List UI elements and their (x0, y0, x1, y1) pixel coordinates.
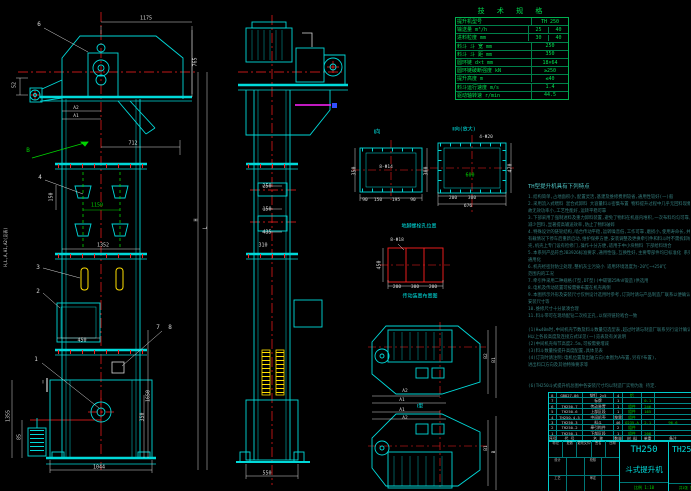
note-line: 8.电机及传动装置可按需要布置在机壳两侧 (528, 285, 690, 292)
title-block-cell: 审定 (585, 476, 603, 491)
note-line: (2)中间机壳每节高度2.5m,可按需要增减 (528, 341, 690, 348)
bom-cell (655, 398, 691, 402)
spec-cell: 30 (529, 35, 549, 41)
note-line: 减少回料,显著提高输送效率,防止了物料破碎 (528, 222, 690, 229)
bom-cell: 牵引构件 (583, 425, 613, 429)
title-block: 标记处数更改文件号签名日期设计校核工艺审定 TH250 斗式提升机 比例 1:1… (548, 440, 691, 491)
note-line: 5.本系列产品符合JB3926标准要求,通用性强,互换性好,主要零部件均已标准化… (528, 250, 690, 257)
spec-cell: 提升高度 m (456, 75, 532, 82)
dim-label: 8 (168, 325, 172, 331)
bom-cell: 按需 (614, 415, 624, 419)
dim-label: H (195, 218, 200, 221)
title-block-cell (602, 476, 619, 491)
dim-label: 8-Φ14 (379, 166, 393, 171)
dim-label: 1150 (91, 204, 103, 209)
dim-label: B (493, 451, 498, 454)
dim-label: 1175 (140, 17, 152, 22)
dim-label: 85 (18, 434, 23, 440)
dim-label: 3 (36, 265, 40, 271)
title-block-cell (567, 476, 585, 491)
dim-label: 1650 (147, 390, 152, 402)
note-line: (1)H≤40m时,中间机壳节数及料斗数量见选型表,超过时请与制造厂联系另行设计… (528, 327, 690, 334)
spec-row: 料斗 斗 距 mm350 (456, 51, 568, 59)
bom-cell: 组件 (623, 404, 641, 408)
note-line: 故无效功率小,工艺性能好,运转平稳可靠 (528, 208, 690, 215)
spec-cell: 料斗 斗 宽 mm (456, 43, 532, 50)
spec-table: 技 术 规 格 提升机型号TH 250输送量 m³/h2540进料粒度 mm30… (455, 6, 569, 100)
note-line: 3.下部采用了强制进料及重力卸料装置,避免了物料在机座内堆积,一次布料均匀可靠,… (528, 215, 690, 222)
bom-cell: 6 (549, 404, 557, 408)
note-line: 7.牵引件采用二种规格(T型,DT型)(中碳钢25MnV锻造)供选用 (528, 278, 690, 285)
bom-cell: 传动装置 (583, 404, 613, 408)
dim-label: 1 (34, 357, 38, 363)
title-block-cell: 校核 (585, 458, 603, 474)
dim-label: Ⅰ (42, 381, 43, 386)
bom-cell: TH250.7 (557, 404, 584, 408)
title-block-row: 标记处数更改文件号签名日期 (549, 441, 619, 458)
dim-label: 8-Φ18 (390, 239, 404, 244)
dim-label: 150 (262, 208, 271, 213)
title-block-cell: 设计 (549, 458, 567, 474)
product-name: 斗式提升机 (620, 464, 668, 483)
dim-label: 250 (262, 185, 271, 190)
dim-label: 450 (77, 339, 86, 344)
spec-cell: ≤40 (532, 76, 568, 82)
dim-label: 195 (392, 199, 400, 204)
bom-cell: 铆钉 2×5 (583, 393, 613, 397)
spec-row: 提升高度 m≤40 (456, 75, 568, 83)
notes-block: TH型提升机具有下列特点 1.结构简单,占地面积小,配置灵活,基建及维修费用较省… (528, 182, 690, 390)
dim-label: 150 (50, 192, 55, 201)
dim-label: 6 (37, 22, 41, 28)
scale-label: 比例 1:10 (620, 482, 668, 491)
dim-label: 90 (362, 199, 367, 204)
anchor-bolt-detail (380, 244, 450, 289)
note-line: 11.料斗带可在现场配钻二次校正孔,以保持链轮啮合一致 (528, 313, 690, 320)
spec-cell: 44.5 (532, 92, 568, 98)
spec-table-title: 技 术 规 格 (455, 6, 569, 17)
bom-cell (655, 431, 691, 435)
spec-table-grid: 提升机型号TH 250输送量 m³/h2540进料粒度 mm3040料斗 斗 宽… (455, 17, 569, 100)
spec-cell: 圆环链破断强度 kN (456, 67, 532, 74)
dim-label: 4 (38, 175, 42, 181)
bom-cell: 2 (614, 425, 624, 429)
note-line: 4.特殊设计的链轮结构,啮合传动平稳,运转噪音低,工作可靠,磨损小,使用寿命长,… (528, 229, 690, 236)
dim-label: 300 (411, 286, 419, 291)
spec-row: 进料粒度 mm3040 (456, 34, 568, 42)
bom-cell: 2.1 (642, 420, 655, 424)
bom-cell: TH250.3 (557, 420, 584, 424)
bom-cell (642, 425, 655, 429)
bom-cell: 46 (614, 420, 624, 424)
dim-label: 200 (429, 286, 437, 291)
title-block-cell: 签名 (592, 441, 606, 457)
note-line: 进出料口方向及其他特殊要求等 (528, 362, 690, 369)
title-block-cell: 日期 (606, 441, 619, 457)
dim-label: 7 (156, 325, 160, 331)
dim-label: H,L,A,A1,A2(见表) (4, 227, 8, 266)
bom-cell: 铝 (623, 393, 641, 397)
title-block-right: TH250 共1张 第1张 (669, 441, 691, 491)
spec-row: 圆环链破断强度 kN≥250 (456, 67, 568, 75)
dim-label: B (26, 148, 30, 154)
front-elevation-view (12, 12, 207, 473)
dim-label: 550 (262, 472, 271, 477)
spec-cell: 250 (532, 43, 568, 49)
bom-cell: 5 (549, 409, 557, 413)
bom-cell (655, 393, 691, 397)
dim-label: 1355 (7, 410, 12, 422)
spec-cell: 40 (549, 35, 568, 41)
notes-lines: 1.结构简单,占地面积小,配置灵活,基建及维修费用较省,通用性较好(一)般2.采… (528, 194, 690, 390)
dim-label: Ⅱ向(放大) (452, 128, 475, 133)
title-block-cell (567, 458, 585, 474)
dim-label: 200 (393, 286, 401, 291)
dim-label: 90 (410, 199, 415, 204)
dim-label: A1 (73, 115, 78, 120)
spec-cell: 25 (529, 27, 549, 33)
note-line (528, 369, 690, 376)
bom-cell: 0.1 (642, 398, 655, 402)
dim-label: A1 (399, 399, 404, 404)
bom-cell: 1 (614, 431, 624, 435)
note-line: 安装尺寸等 (528, 299, 690, 306)
spec-row: 圆环链 d×t mm18×64 (456, 59, 568, 67)
spec-cell: 40 (549, 27, 568, 33)
note-line: 6.机壳经密封防尘处理,整机灰尘污染小 适用环境温度为-20℃~+250℃ (528, 264, 690, 271)
bom-cell (655, 409, 691, 413)
dim-label: 435 (262, 231, 271, 236)
spec-cell: TH 250 (532, 19, 568, 25)
note-line: 9.本图所示外形及安装尺寸仅供设计选用时参考,订货时请与产品制造厂联系以便确认最… (528, 292, 690, 299)
dim-label: 450 (378, 260, 383, 269)
dim-label: 150 (374, 199, 382, 204)
bom-cell: TH250.4,5 (557, 415, 584, 419)
title-block-cell: 更改文件号 (577, 441, 591, 457)
dim-label: B1 (493, 357, 498, 362)
dim-label: A2 (73, 107, 78, 112)
dim-label: 310 (258, 244, 267, 249)
dim-label: 765 (194, 57, 199, 66)
dim-label: 470 (509, 163, 514, 172)
title-block-row: 设计校核 (549, 458, 619, 475)
dim-label: B2 (485, 353, 490, 358)
dim-label: 300 (425, 166, 430, 175)
drive-arrangement-upper (368, 322, 496, 403)
bom-cell: 上部区段 (583, 409, 613, 413)
bom-cell: 下部区段 (583, 431, 613, 435)
spec-cell: 1.4 (532, 84, 568, 90)
bom-cell (642, 415, 655, 419)
notes-title: TH型提升机具有下列特点 (528, 182, 690, 190)
dim-label: A1 (399, 409, 404, 414)
bom-cell: 料斗 (583, 420, 613, 424)
dim-label: 712 (128, 142, 137, 147)
bom-cell: TH250.2 (557, 425, 584, 429)
detail-view-1 (352, 140, 430, 201)
dim-label: B1 (485, 445, 490, 450)
dim-label: Ⅰ向 (373, 130, 380, 136)
bom-cell: 中间机壳 (583, 415, 613, 419)
dim-label: 传动装置布置图 (402, 295, 437, 300)
bom-cell: 组件 (623, 409, 641, 413)
bom-cell: 标牌 (583, 398, 613, 402)
bom-cell (557, 398, 584, 402)
dim-label: 350 (353, 166, 358, 175)
spec-row: 料斗运行速度 m/s1.4 (456, 84, 568, 92)
bom-cell: TH250.6 (557, 409, 584, 413)
bom-cell: Q235-A (623, 420, 641, 424)
bom-cell: 3 (549, 420, 557, 424)
cad-drawing-canvas[interactable]: 1175676552A2A1712B41501150135232450781Ⅰ1… (0, 0, 691, 491)
bom-cell: 组件 (623, 425, 641, 429)
note-line (528, 320, 690, 327)
dim-label: 2 (36, 289, 40, 295)
bom-cell: 1 (614, 409, 624, 413)
title-block-center: TH250 斗式提升机 比例 1:10 (620, 441, 669, 491)
dim-label: 地脚螺栓孔位置 (401, 225, 436, 230)
spec-row: 提升机型号TH 250 (456, 18, 568, 26)
note-line: 壳,机壳上专门设有检修门,操作十分方便,适用于中小块物料 下部给料场合 (528, 243, 690, 250)
dim-label: A2 (402, 390, 407, 395)
dim-label: 52 (13, 82, 18, 88)
spec-cell: 18×64 (532, 60, 568, 66)
dim-label: 4-Φ20 (479, 136, 493, 141)
spec-cell: 圆环链 d×t mm (456, 59, 532, 66)
title-block-cell: 工艺 (549, 476, 567, 491)
bom-cell: 2 (549, 425, 557, 429)
sheet-label: 共1张 第1张 (669, 483, 691, 491)
note-line: 通用化 (528, 257, 690, 264)
spec-cell: 提升机型号 (456, 18, 532, 25)
spec-cell: 进料粒度 mm (456, 34, 529, 41)
bom-cell: 96.6 (655, 420, 691, 424)
bom-cell: 组件 (623, 415, 641, 419)
drive-arrangement-lower (368, 410, 496, 490)
bom-cell: TH250.1 (557, 431, 584, 435)
spec-cell: 料斗 斗 距 mm (456, 51, 532, 58)
note-line (528, 376, 690, 383)
dim-label: 676 (464, 205, 472, 210)
note-line: 1.结构简单,占地面积小,配置灵活,基建及维修费用较省,通用性较好(一)般 (528, 194, 690, 201)
bom-cell: 组件 (623, 431, 641, 435)
drawing-number: TH250 (669, 441, 691, 483)
note-line: 有载情况下停车后重新启动,维护保养方便,安装调整及更换牵引件和料斗时不需拆卸机 (528, 236, 690, 243)
bom-cell: 8 (549, 393, 557, 397)
dim-label: L (204, 226, 209, 229)
bom-cell (655, 425, 691, 429)
spec-cell: 料斗运行速度 m/s (456, 84, 532, 91)
title-block-cell: 处数 (563, 441, 577, 457)
note-line: (6)TH250斗式提升机总图中各安装尺寸均以制造厂实物为准 待定. (528, 383, 690, 390)
bom-cell (642, 393, 655, 397)
note-line: 范围内的工况 (528, 271, 690, 278)
bom-cell: 1 (614, 404, 624, 408)
bom-cell: 1 (614, 398, 624, 402)
spec-row: 输送量 m³/h2540 (456, 26, 568, 34)
note-line: H以上各段高度及连接方式详见(一)览表及有关说明 (528, 334, 690, 341)
title-block-row: 工艺审定 (549, 476, 619, 491)
model-number: TH250 (620, 441, 668, 464)
spec-cell: 输送量 m³/h (456, 26, 529, 33)
title-block-cell: 标记 (549, 441, 563, 457)
bom-cell (655, 415, 691, 419)
note-line: 2.采用流入式喂料 混合式卸料 大容量料斗密集布置 物料提升过程中几乎无回料现象 (528, 201, 690, 208)
bom-table: 8GB827-86铆钉 2×54铝7标牌10.16TH250.7传动装置1组件2… (548, 392, 691, 442)
dim-label: Ⅰ型 (417, 405, 423, 410)
bom-cell: GB827-86 (557, 393, 584, 397)
bom-cell (623, 398, 641, 402)
bom-cell: 165 (642, 409, 655, 413)
note-line: (4)订货时请注明:电机位置及出轴方向(本图为A布置,另有Y布置), (528, 355, 690, 362)
dim-label: 350 (141, 412, 146, 421)
bom-cell: 4 (549, 415, 557, 419)
bom-cell: 246 (642, 404, 655, 408)
spec-cell: ≥250 (532, 68, 568, 74)
bom-cell: 1 (549, 431, 557, 435)
side-elevation-view (236, 15, 348, 485)
bom-cell: 208 (642, 431, 655, 435)
note-line: (3)料斗数量按提升高度配置,具体见表 (528, 348, 690, 355)
dim-label: 600 (465, 174, 474, 179)
bom-cell: 4 (614, 393, 624, 397)
spec-cell: 驱动轴转速 r/min (456, 92, 532, 99)
bom-cell: 7 (549, 398, 557, 402)
spec-cell: 350 (532, 51, 568, 57)
title-block-cell (602, 458, 619, 474)
dim-label: 200 (449, 197, 457, 202)
title-block-signature-grid: 标记处数更改文件号签名日期设计校核工艺审定 (549, 441, 620, 491)
spec-row: 料斗 斗 宽 mm250 (456, 43, 568, 51)
dim-label: 300 (468, 197, 476, 202)
bom-cell (655, 404, 691, 408)
note-line: 10.维修尺寸十分紧凑合理 (528, 306, 690, 313)
spec-row: 驱动轴转速 r/min44.5 (456, 92, 568, 99)
dim-label: 1352 (97, 244, 109, 249)
dim-label: 1044 (93, 466, 105, 471)
dim-label: A2 (402, 417, 407, 422)
